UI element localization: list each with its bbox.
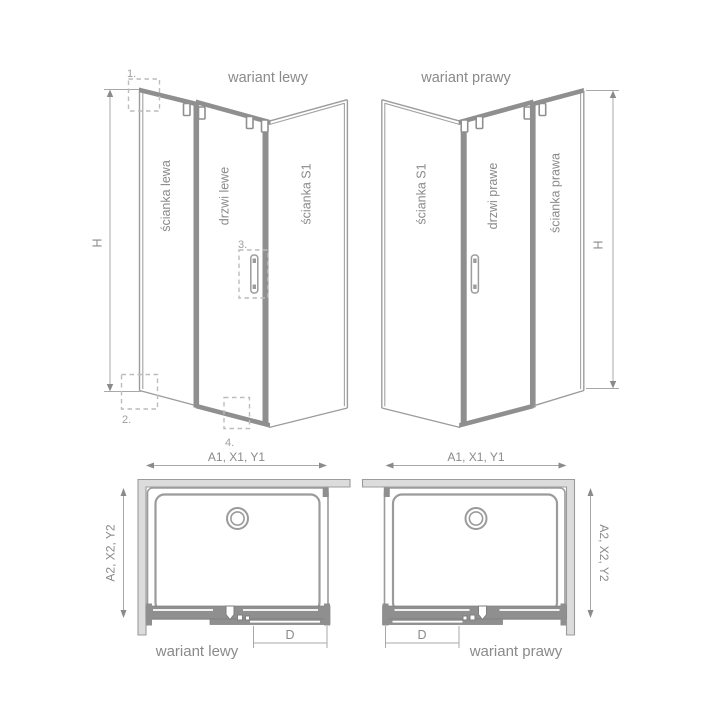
arrow-down-icon xyxy=(121,610,127,618)
arrow-up-icon xyxy=(107,90,113,98)
depth-label-left-plan: A2, X2, Y2 xyxy=(104,524,118,581)
door-dimension-right-plan: D xyxy=(386,626,460,648)
roller-bracket-icon xyxy=(476,117,483,129)
arrow-up-icon xyxy=(588,488,594,496)
roller-bracket-icon xyxy=(184,104,191,116)
left-variant-plan: A1, X1, Y1 xyxy=(104,450,351,660)
left-variant-3d-title: wariant lewy xyxy=(227,70,309,86)
door-dimension-left-plan: D xyxy=(254,626,328,648)
panel-label-drzwi-prawe: drzwi prawe xyxy=(486,163,500,230)
panel-label-scianka-prawa: ścianka prawa xyxy=(549,153,563,233)
panel-scianka-s1-right: ścianka S1 xyxy=(382,100,460,428)
callout-3-label: 3. xyxy=(238,239,247,251)
panel-scianka-prawa: ścianka prawa xyxy=(533,88,584,406)
right-plan-caption: wariant prawy xyxy=(469,643,563,660)
door-handle-left xyxy=(251,255,258,293)
corner-post-right xyxy=(384,488,390,498)
width-dimension-right-plan: A1, X1, Y1 xyxy=(386,450,567,469)
panel-scianka-lewa: ścianka lewa xyxy=(139,88,198,407)
corner-post-left xyxy=(323,488,329,498)
arrow-right-icon xyxy=(559,463,567,469)
roller-bracket-icon xyxy=(247,117,254,129)
arrow-left-icon xyxy=(386,463,394,469)
arrow-up-icon xyxy=(121,488,127,496)
door-handle-right xyxy=(471,255,478,293)
callout-2-label: 2. xyxy=(122,414,131,426)
left-plan-caption: wariant lewy xyxy=(155,643,239,660)
shower-enclosure-diagram: wariant lewy H ścianka lewa xyxy=(0,0,720,720)
right-variant-3d-title: wariant prawy xyxy=(420,70,511,86)
diagram-canvas: wariant lewy H ścianka lewa xyxy=(0,0,720,720)
depth-dimension-right-plan: A2, X2, Y2 xyxy=(588,488,612,618)
roller-bracket-icon xyxy=(262,120,269,132)
drain-left xyxy=(227,508,248,529)
right-variant-3d: wariant prawy ścianka S1 drzw xyxy=(382,70,619,428)
door-width-label-left: D xyxy=(285,628,294,642)
panel-label-scianka-s1-right: ścianka S1 xyxy=(415,163,429,224)
callout-1-label: 1. xyxy=(127,68,136,80)
panel-drzwi-prawe: drzwi prawe xyxy=(459,100,546,428)
depth-dimension-left-plan: A2, X2, Y2 xyxy=(104,488,127,618)
panel-drzwi-lewe: drzwi lewe xyxy=(184,100,271,428)
roller-bracket-icon xyxy=(199,107,206,119)
door-track-right xyxy=(383,604,567,626)
width-label-left-plan: A1, X1, Y1 xyxy=(208,450,265,464)
left-variant-3d: wariant lewy H ścianka lewa xyxy=(91,68,348,449)
callout-4-label: 4. xyxy=(225,437,234,449)
panel-label-scianka-lewa: ścianka lewa xyxy=(159,160,173,232)
depth-label-right-plan: A2, X2, Y2 xyxy=(597,524,611,581)
arrow-right-icon xyxy=(319,463,327,469)
roller-bracket-icon xyxy=(461,120,468,132)
height-label-right: H xyxy=(592,240,606,249)
arrow-down-icon xyxy=(588,610,594,618)
arrow-up-icon xyxy=(610,91,616,99)
roller-bracket-icon xyxy=(539,104,546,116)
door-width-label-right: D xyxy=(417,628,426,642)
panel-label-drzwi-lewe: drzwi lewe xyxy=(218,167,232,225)
right-variant-plan: A1, X1, Y1 xyxy=(363,450,612,660)
width-label-right-plan: A1, X1, Y1 xyxy=(447,450,504,464)
height-label-left: H xyxy=(91,238,105,247)
door-track-left xyxy=(146,604,330,626)
arrow-down-icon xyxy=(107,384,113,392)
width-dimension-left-plan: A1, X1, Y1 xyxy=(146,450,327,469)
height-dimension-left: H xyxy=(91,90,142,392)
panel-scianka-s1-left: ścianka S1 xyxy=(269,100,347,428)
arrow-down-icon xyxy=(610,381,616,389)
arrow-left-icon xyxy=(146,463,154,469)
panel-label-scianka-s1-left: ścianka S1 xyxy=(300,163,314,224)
callout-4: 4. xyxy=(224,398,250,450)
height-dimension-right: H xyxy=(586,91,619,389)
drain-right xyxy=(466,508,487,529)
roller-bracket-icon xyxy=(524,107,531,119)
